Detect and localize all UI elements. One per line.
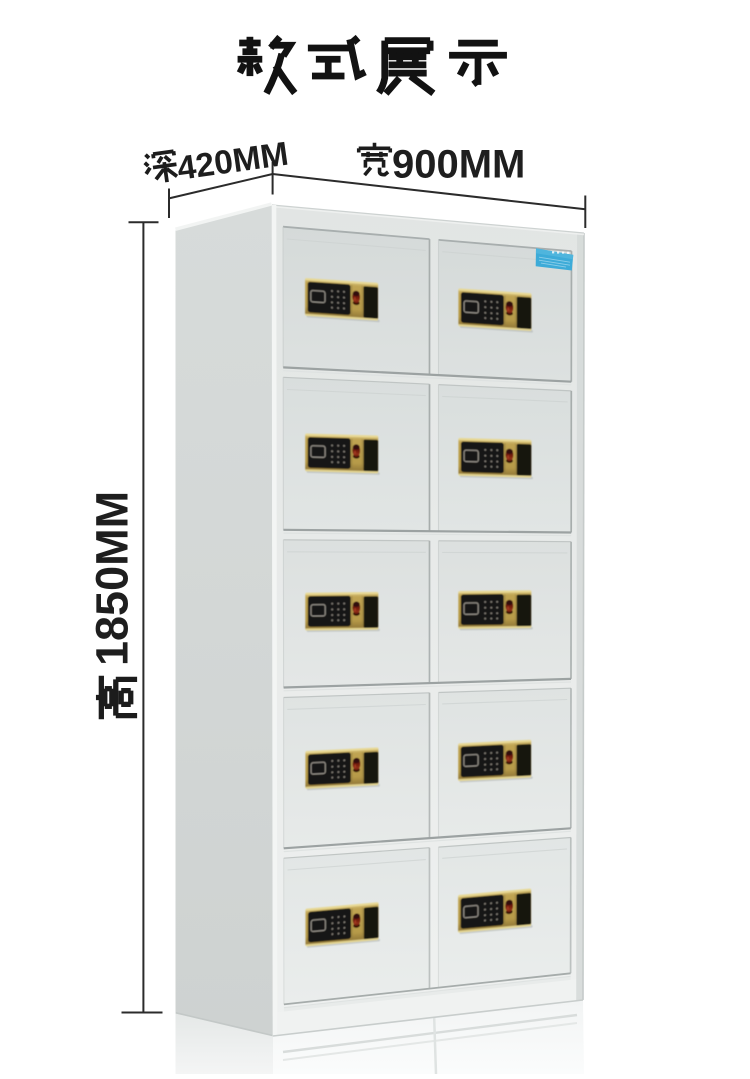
svg-text:1850MM: 1850MM [87,491,138,666]
svg-text:900MM: 900MM [392,143,525,187]
